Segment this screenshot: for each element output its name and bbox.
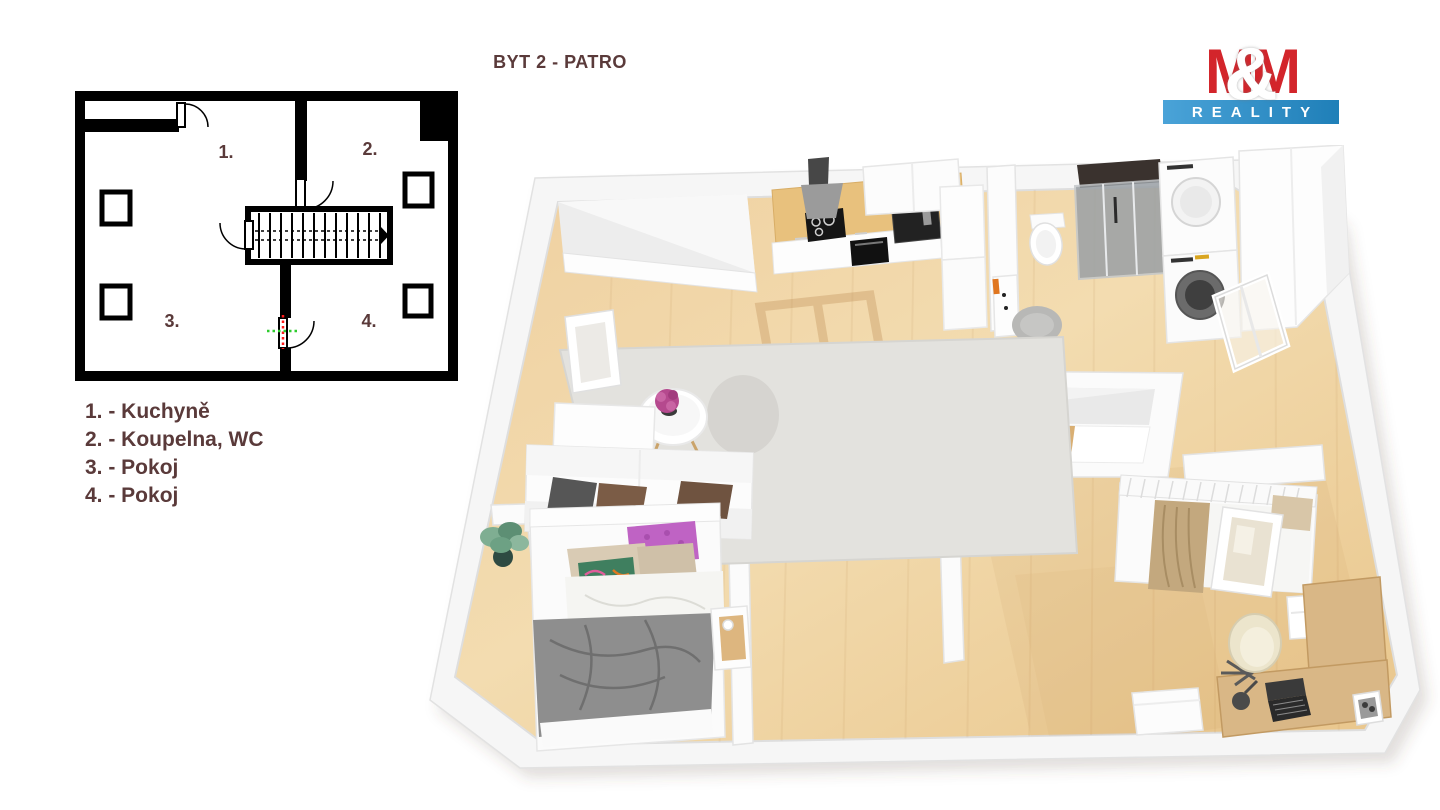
page-title: BYT 2 - PATRO <box>440 52 680 73</box>
room-label-1: 1. <box>218 142 233 162</box>
wall-room1-room2 <box>295 101 307 181</box>
tall-cabinet-top <box>940 185 985 260</box>
bench-lamp <box>723 620 733 630</box>
staircase <box>248 209 390 262</box>
plan-3d-render <box>415 145 1440 800</box>
hood <box>801 183 843 219</box>
door-room4 <box>267 315 314 349</box>
legend-item-room4: 4. - Pokoj <box>85 482 264 510</box>
oven <box>850 237 889 266</box>
legend-item-kitchen: 1. - Kuchyně <box>85 398 264 426</box>
tall-cabinet-bottom <box>942 257 987 330</box>
shower-glass <box>1075 180 1167 279</box>
logo-ampersand: & <box>1224 31 1277 116</box>
laptop <box>1265 678 1311 722</box>
room-label-3: 3. <box>164 311 179 331</box>
photo-card <box>1353 691 1383 725</box>
shower-fixture <box>1115 197 1116 223</box>
white-box <box>1132 688 1203 735</box>
plan-2d-schematic: 1. 2. 3. 4. <box>75 91 458 381</box>
legend-item-bathroom: 2. - Koupelna, WC <box>85 426 264 454</box>
bedroom-3 <box>530 503 751 751</box>
picture-frame-upper <box>565 310 621 393</box>
leaning-mirror <box>1211 507 1283 597</box>
door-stairs <box>220 221 253 249</box>
logo-mm-mark: M M & <box>1163 40 1339 98</box>
hood-chimney <box>808 157 829 186</box>
mm-reality-logo: M M & REALITY <box>1163 40 1339 124</box>
door-top-left <box>177 103 208 127</box>
room-label-2: 2. <box>362 139 377 159</box>
niche-wall <box>82 119 179 132</box>
bed-bench <box>711 606 751 670</box>
legend-item-room3: 3. - Pokoj <box>85 454 264 482</box>
room-label-4: 4. <box>361 311 376 331</box>
chimney-block <box>420 97 458 141</box>
door-room2 <box>296 179 333 209</box>
room-legend: 1. - Kuchyně 2. - Koupelna, WC 3. - Poko… <box>85 398 264 510</box>
rug-shadow <box>707 375 779 455</box>
blanket-tan <box>1148 500 1210 593</box>
floorplan-page: BYT 2 - PATRO M M & REALITY <box>0 0 1440 810</box>
